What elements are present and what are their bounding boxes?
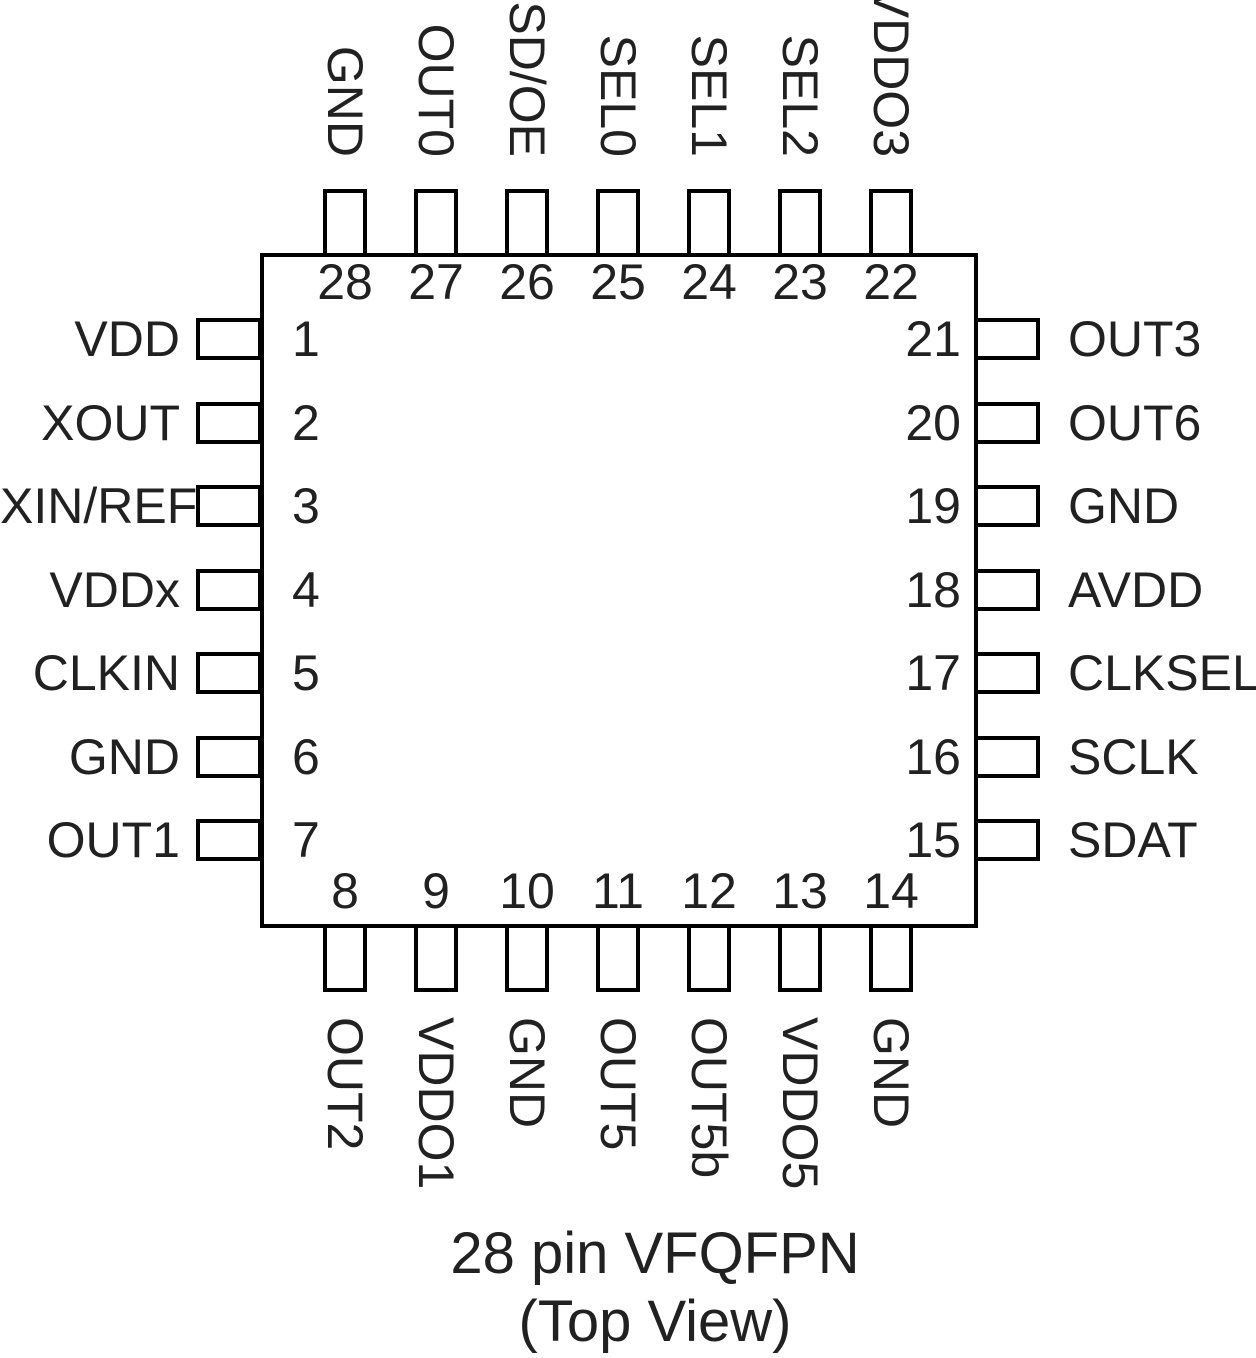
pin-number: 18 xyxy=(841,565,961,615)
pin-label: SEL1 xyxy=(684,35,734,157)
pin-number: 17 xyxy=(841,648,961,698)
pin-box-26 xyxy=(505,189,549,257)
pin-box-20 xyxy=(974,402,1040,444)
pin-box-27 xyxy=(414,189,458,257)
pin-number: 2 xyxy=(292,398,412,448)
pin-box-10 xyxy=(505,924,549,992)
pin-box-2 xyxy=(196,402,262,444)
pin-label: SEL2 xyxy=(775,35,825,157)
pin-label: GND xyxy=(866,1017,916,1128)
pin-box-21 xyxy=(974,318,1040,360)
pin-box-4 xyxy=(196,569,262,611)
pin-box-14 xyxy=(869,924,913,992)
pin-box-12 xyxy=(687,924,731,992)
pin-label: OUT2 xyxy=(320,1017,370,1150)
pin-number: 21 xyxy=(841,314,961,364)
pin-box-13 xyxy=(778,924,822,992)
pin-label: AVDD xyxy=(1068,565,1256,615)
pin-label: OUT5 xyxy=(593,1017,643,1150)
pin-box-3 xyxy=(196,485,262,527)
pin-label: GND xyxy=(0,732,180,782)
pin-box-23 xyxy=(778,189,822,257)
pin-number: 3 xyxy=(292,481,412,531)
pin-box-16 xyxy=(974,736,1040,778)
pin-label: OUT5b xyxy=(684,1017,734,1178)
pin-box-11 xyxy=(596,924,640,992)
pin-box-24 xyxy=(687,189,731,257)
pin-label: VDDO1 xyxy=(411,1017,461,1189)
pin-label: VDD xyxy=(0,314,180,364)
pin-box-1 xyxy=(196,318,262,360)
pin-label: SD/OE xyxy=(502,1,552,157)
pin-diagram: 28 pin VFQFPN (Top View) 28GND27OUT026SD… xyxy=(0,0,1256,1358)
caption-line1: 28 pin VFQFPN xyxy=(355,1222,955,1286)
pin-box-28 xyxy=(323,189,367,257)
pin-label: SCLK xyxy=(1068,732,1256,782)
pin-number: 16 xyxy=(841,732,961,782)
pin-label: VDDO3 xyxy=(866,0,916,157)
pin-box-17 xyxy=(974,652,1040,694)
pin-label: CLKIN xyxy=(0,648,180,698)
pin-number: 4 xyxy=(292,565,412,615)
pin-number: 14 xyxy=(831,866,951,916)
pin-number: 22 xyxy=(831,257,951,307)
pin-box-19 xyxy=(974,485,1040,527)
pin-label: OUT3 xyxy=(1068,314,1256,364)
pin-label: VDDO5 xyxy=(775,1017,825,1189)
pin-number: 6 xyxy=(292,732,412,782)
pin-label: SDAT xyxy=(1068,815,1256,865)
pin-label: OUT6 xyxy=(1068,398,1256,448)
pin-number: 15 xyxy=(841,815,961,865)
pin-number: 19 xyxy=(841,481,961,531)
pin-label: VDDx xyxy=(0,565,180,615)
pin-number: 7 xyxy=(292,815,412,865)
pin-number: 20 xyxy=(841,398,961,448)
pin-number: 1 xyxy=(292,314,412,364)
pin-box-18 xyxy=(974,569,1040,611)
pin-box-5 xyxy=(196,652,262,694)
pin-box-6 xyxy=(196,736,262,778)
pin-box-7 xyxy=(196,819,262,861)
pin-label: GND xyxy=(502,1017,552,1128)
pin-label: XOUT xyxy=(0,398,180,448)
pin-label: GND xyxy=(320,46,370,157)
pin-label: GND xyxy=(1068,481,1256,531)
caption-line2: (Top View) xyxy=(355,1290,955,1354)
pin-box-8 xyxy=(323,924,367,992)
pin-number: 5 xyxy=(292,648,412,698)
pin-label: OUT0 xyxy=(411,24,461,157)
pin-box-9 xyxy=(414,924,458,992)
pin-box-22 xyxy=(869,189,913,257)
pin-box-25 xyxy=(596,189,640,257)
pin-label: SEL0 xyxy=(593,35,643,157)
pin-box-15 xyxy=(974,819,1040,861)
pin-label: CLKSEL xyxy=(1068,648,1256,698)
pin-label: XIN/REF xyxy=(0,481,180,531)
pin-label: OUT1 xyxy=(0,815,180,865)
